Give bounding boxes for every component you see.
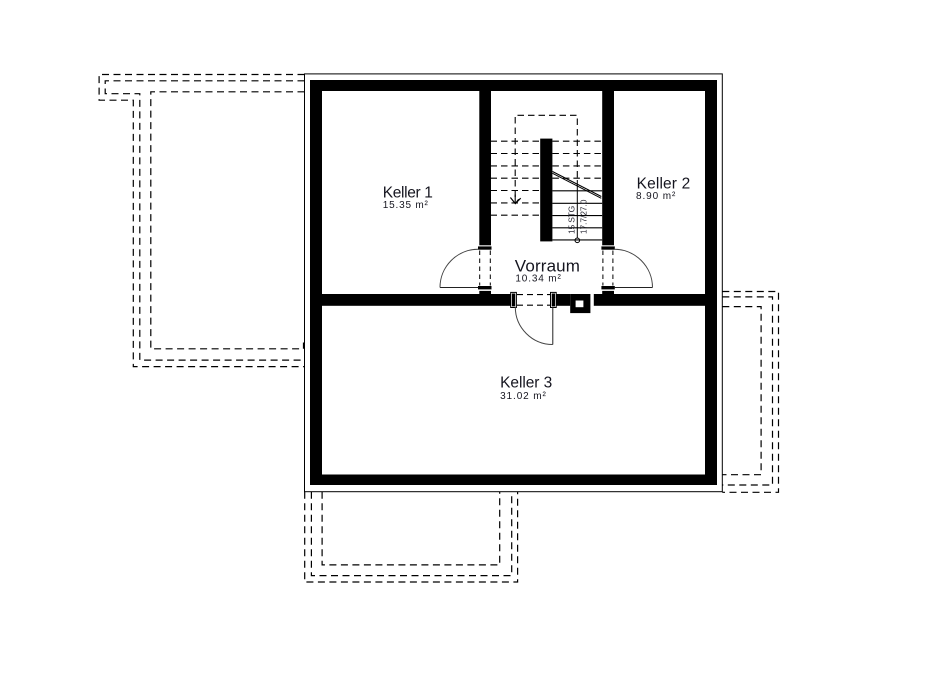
svg-text:15.35 m²: 15.35 m² — [383, 200, 429, 211]
svg-text:Vorraum: Vorraum — [515, 256, 580, 275]
svg-text:10.34 m²: 10.34 m² — [515, 274, 561, 285]
svg-text:Keller 1: Keller 1 — [383, 184, 433, 201]
svg-text:31.02 m²: 31.02 m² — [500, 391, 547, 402]
svg-text:Keller 3: Keller 3 — [500, 374, 552, 391]
svg-text:17.7/27.0: 17.7/27.0 — [579, 199, 588, 234]
svg-text:8.90 m²: 8.90 m² — [636, 191, 676, 202]
svg-text:15 STG: 15 STG — [566, 206, 576, 234]
